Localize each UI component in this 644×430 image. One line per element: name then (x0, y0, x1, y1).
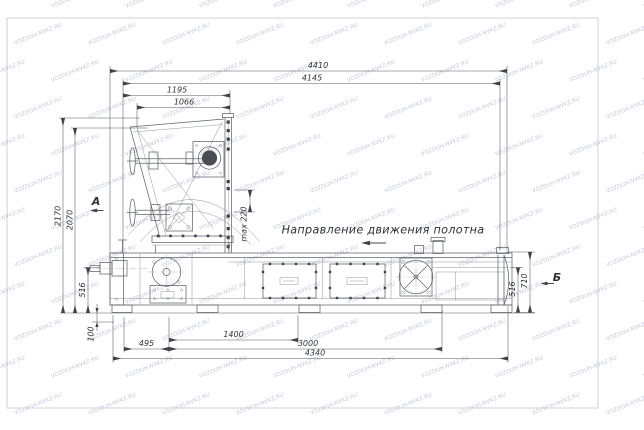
watermark-text: VOZDUH-NVKZ.RU (310, 96, 360, 121)
watermark-text: VOZDUH-NVKZ.RU (384, 392, 434, 417)
watermark-text: VOZDUH-NVKZ.RU (606, 22, 644, 47)
watermark-text: VOZDUH-NVKZ.RU (88, 22, 138, 47)
watermark-text: VOZDUH-NVKZ.RU (421, 133, 471, 158)
watermark-text: VOZDUH-NVKZ.RU (458, 318, 508, 343)
watermark-text: VOZDUH-NVKZ.RU (347, 0, 397, 10)
dim-1195: 1195 (123, 86, 230, 96)
watermark-text: VOZDUH-NVKZ.RU (0, 207, 26, 232)
watermark-text: VOZDUH-NVKZ.RU (14, 392, 64, 417)
watermark-text: VOZDUH-NVKZ.RU (14, 22, 64, 47)
watermark-text: VOZDUH-NVKZ.RU (347, 355, 397, 380)
watermark-text: VOZDUH-NVKZ.RU (162, 392, 212, 417)
dim-label-4410: 4410 (308, 61, 328, 70)
watermark-text: VOZDUH-NVKZ.RU (347, 133, 397, 158)
technical-drawing-page: VOZDUH-NVKZ.RUVOZDUH-NVKZ.RUVOZDUH-NVKZ.… (0, 0, 644, 430)
watermark-text: VOZDUH-NVKZ.RU (495, 0, 545, 10)
conveyor-base (84, 238, 512, 313)
watermark-text: VOZDUH-NVKZ.RU (273, 281, 323, 306)
machine-drawing-svg: VOZDUH-NVKZ.RUVOZDUH-NVKZ.RUVOZDUH-NVKZ.… (0, 0, 644, 430)
watermark-text: VOZDUH-NVKZ.RU (606, 96, 644, 121)
watermark-text: VOZDUH-NVKZ.RU (347, 59, 397, 84)
watermark-text: VOZDUH-NVKZ.RU (384, 96, 434, 121)
watermark-text: VOZDUH-NVKZ.RU (0, 281, 26, 306)
watermark-text: VOZDUH-NVKZ.RU (310, 392, 360, 417)
direction-label: Направление движения полотна (282, 224, 485, 237)
watermark-text: VOZDUH-NVKZ.RU (236, 392, 286, 417)
dim-label-4145: 4145 (302, 74, 322, 83)
watermark-text: VOZDUH-NVKZ.RU (532, 96, 582, 121)
watermark-text: VOZDUH-NVKZ.RU (14, 96, 64, 121)
watermark-text: VOZDUH-NVKZ.RU (384, 170, 434, 195)
watermark-text: VOZDUH-NVKZ.RU (162, 170, 212, 195)
watermark-text: VOZDUH-NVKZ.RU (273, 355, 323, 380)
watermark-text: VOZDUH-NVKZ.RU (273, 133, 323, 158)
watermark-text: VOZDUH-NVKZ.RU (0, 133, 26, 158)
watermark-text: VOZDUH-NVKZ.RU (532, 244, 582, 269)
watermark-text: VOZDUH-NVKZ.RU (125, 281, 175, 306)
watermark-text: VOZDUH-NVKZ.RU (532, 392, 582, 417)
watermark-text: VOZDUH-NVKZ.RU (125, 0, 175, 10)
watermark-text: VOZDUH-NVKZ.RU (51, 355, 101, 380)
watermark-text: VOZDUH-NVKZ.RU (606, 318, 644, 343)
watermark-text: VOZDUH-NVKZ.RU (125, 355, 175, 380)
watermark-text: VOZDUH-NVKZ.RU (347, 281, 397, 306)
watermark-text: VOZDUH-NVKZ.RU (0, 0, 26, 10)
dim-3000: 3000 (169, 339, 442, 349)
dim-2070: 2070 (66, 128, 76, 313)
watermark-text: VOZDUH-NVKZ.RU (236, 244, 286, 269)
watermark-text: VOZDUH-NVKZ.RU (532, 170, 582, 195)
watermark-text: VOZDUH-NVKZ.RU (606, 244, 644, 269)
watermark-text: VOZDUH-NVKZ.RU (421, 281, 471, 306)
dim-label-2170: 2170 (54, 206, 63, 226)
dim-label-516-left: 516 (78, 282, 87, 297)
watermark-text: VOZDUH-NVKZ.RU (495, 59, 545, 84)
dim-label-3000: 3000 (298, 339, 318, 348)
watermark-text: VOZDUH-NVKZ.RU (14, 244, 64, 269)
watermark-text: VOZDUH-NVKZ.RU (384, 22, 434, 47)
watermark-text: VOZDUH-NVKZ.RU (532, 318, 582, 343)
dim-label-1195: 1195 (167, 86, 187, 95)
watermark-text: VOZDUH-NVKZ.RU (0, 59, 26, 84)
watermark-text: VOZDUH-NVKZ.RU (0, 355, 26, 380)
watermark-text: VOZDUH-NVKZ.RU (88, 96, 138, 121)
dim-label-1066: 1066 (174, 98, 194, 107)
watermark-text: VOZDUH-NVKZ.RU (384, 318, 434, 343)
watermark-text: VOZDUH-NVKZ.RU (569, 207, 619, 232)
dim-label-100: 100 (87, 326, 96, 341)
watermark-text: VOZDUH-NVKZ.RU (310, 22, 360, 47)
watermark-text: VOZDUH-NVKZ.RU (236, 96, 286, 121)
watermark-text: VOZDUH-NVKZ.RU (199, 355, 249, 380)
dim-label-2070: 2070 (66, 210, 75, 230)
dim-1066: 1066 (137, 98, 230, 108)
watermark-text: VOZDUH-NVKZ.RU (125, 207, 175, 232)
watermark-text: VOZDUH-NVKZ.RU (199, 281, 249, 306)
dim-label-4340: 4340 (305, 349, 325, 358)
watermark-text: VOZDUH-NVKZ.RU (162, 244, 212, 269)
direction-arrow-icon (361, 241, 386, 246)
watermark-text: VOZDUH-NVKZ.RU (51, 0, 101, 10)
dim-label-710: 710 (520, 273, 529, 288)
watermark-text: VOZDUH-NVKZ.RU (236, 170, 286, 195)
dim-label-495: 495 (139, 339, 154, 348)
watermark-text: VOZDUH-NVKZ.RU (495, 207, 545, 232)
watermark-text: VOZDUH-NVKZ.RU (458, 244, 508, 269)
watermark-text: VOZDUH-NVKZ.RU (458, 22, 508, 47)
watermark-text: VOZDUH-NVKZ.RU (458, 170, 508, 195)
watermark-text: VOZDUH-NVKZ.RU (310, 170, 360, 195)
watermark-text: VOZDUH-NVKZ.RU (569, 281, 619, 306)
watermark-text: VOZDUH-NVKZ.RU (14, 318, 64, 343)
watermark-text: VOZDUH-NVKZ.RU (88, 392, 138, 417)
watermark-text: VOZDUH-NVKZ.RU (14, 170, 64, 195)
tail-pulley (396, 257, 436, 297)
watermark-text: VOZDUH-NVKZ.RU (458, 96, 508, 121)
watermark-text: VOZDUH-NVKZ.RU (51, 59, 101, 84)
watermark-text: VOZDUH-NVKZ.RU (458, 392, 508, 417)
watermark-text: VOZDUH-NVKZ.RU (606, 170, 644, 195)
watermark-text: VOZDUH-NVKZ.RU (606, 392, 644, 417)
watermark-text: VOZDUH-NVKZ.RU (273, 0, 323, 10)
watermark-text: VOZDUH-NVKZ.RU (569, 0, 619, 10)
watermark-text: VOZDUH-NVKZ.RU (199, 59, 249, 84)
dim-516-left: 516 (78, 268, 88, 314)
watermark-text: VOZDUH-NVKZ.RU (569, 355, 619, 380)
dim-label-516-right: 516 (508, 281, 517, 296)
dim-label-max220: max 220 (240, 206, 249, 241)
watermark-text: VOZDUH-NVKZ.RU (569, 133, 619, 158)
watermark-text: VOZDUH-NVKZ.RU (495, 133, 545, 158)
watermark-text: VOZDUH-NVKZ.RU (125, 59, 175, 84)
watermark-text: VOZDUH-NVKZ.RU (88, 170, 138, 195)
watermark-text: VOZDUH-NVKZ.RU (199, 0, 249, 10)
watermark-text: VOZDUH-NVKZ.RU (421, 0, 471, 10)
dim-label-1400: 1400 (223, 330, 243, 339)
watermark-text: VOZDUH-NVKZ.RU (236, 22, 286, 47)
watermark-text: VOZDUH-NVKZ.RU (569, 59, 619, 84)
watermark-text: VOZDUH-NVKZ.RU (495, 355, 545, 380)
view-label-a: А (91, 195, 101, 208)
watermark-text: VOZDUH-NVKZ.RU (421, 355, 471, 380)
watermark-text: VOZDUH-NVKZ.RU (162, 22, 212, 47)
view-label-b: Б (553, 271, 561, 284)
watermark-text: VOZDUH-NVKZ.RU (532, 22, 582, 47)
watermark-text: VOZDUH-NVKZ.RU (421, 59, 471, 84)
